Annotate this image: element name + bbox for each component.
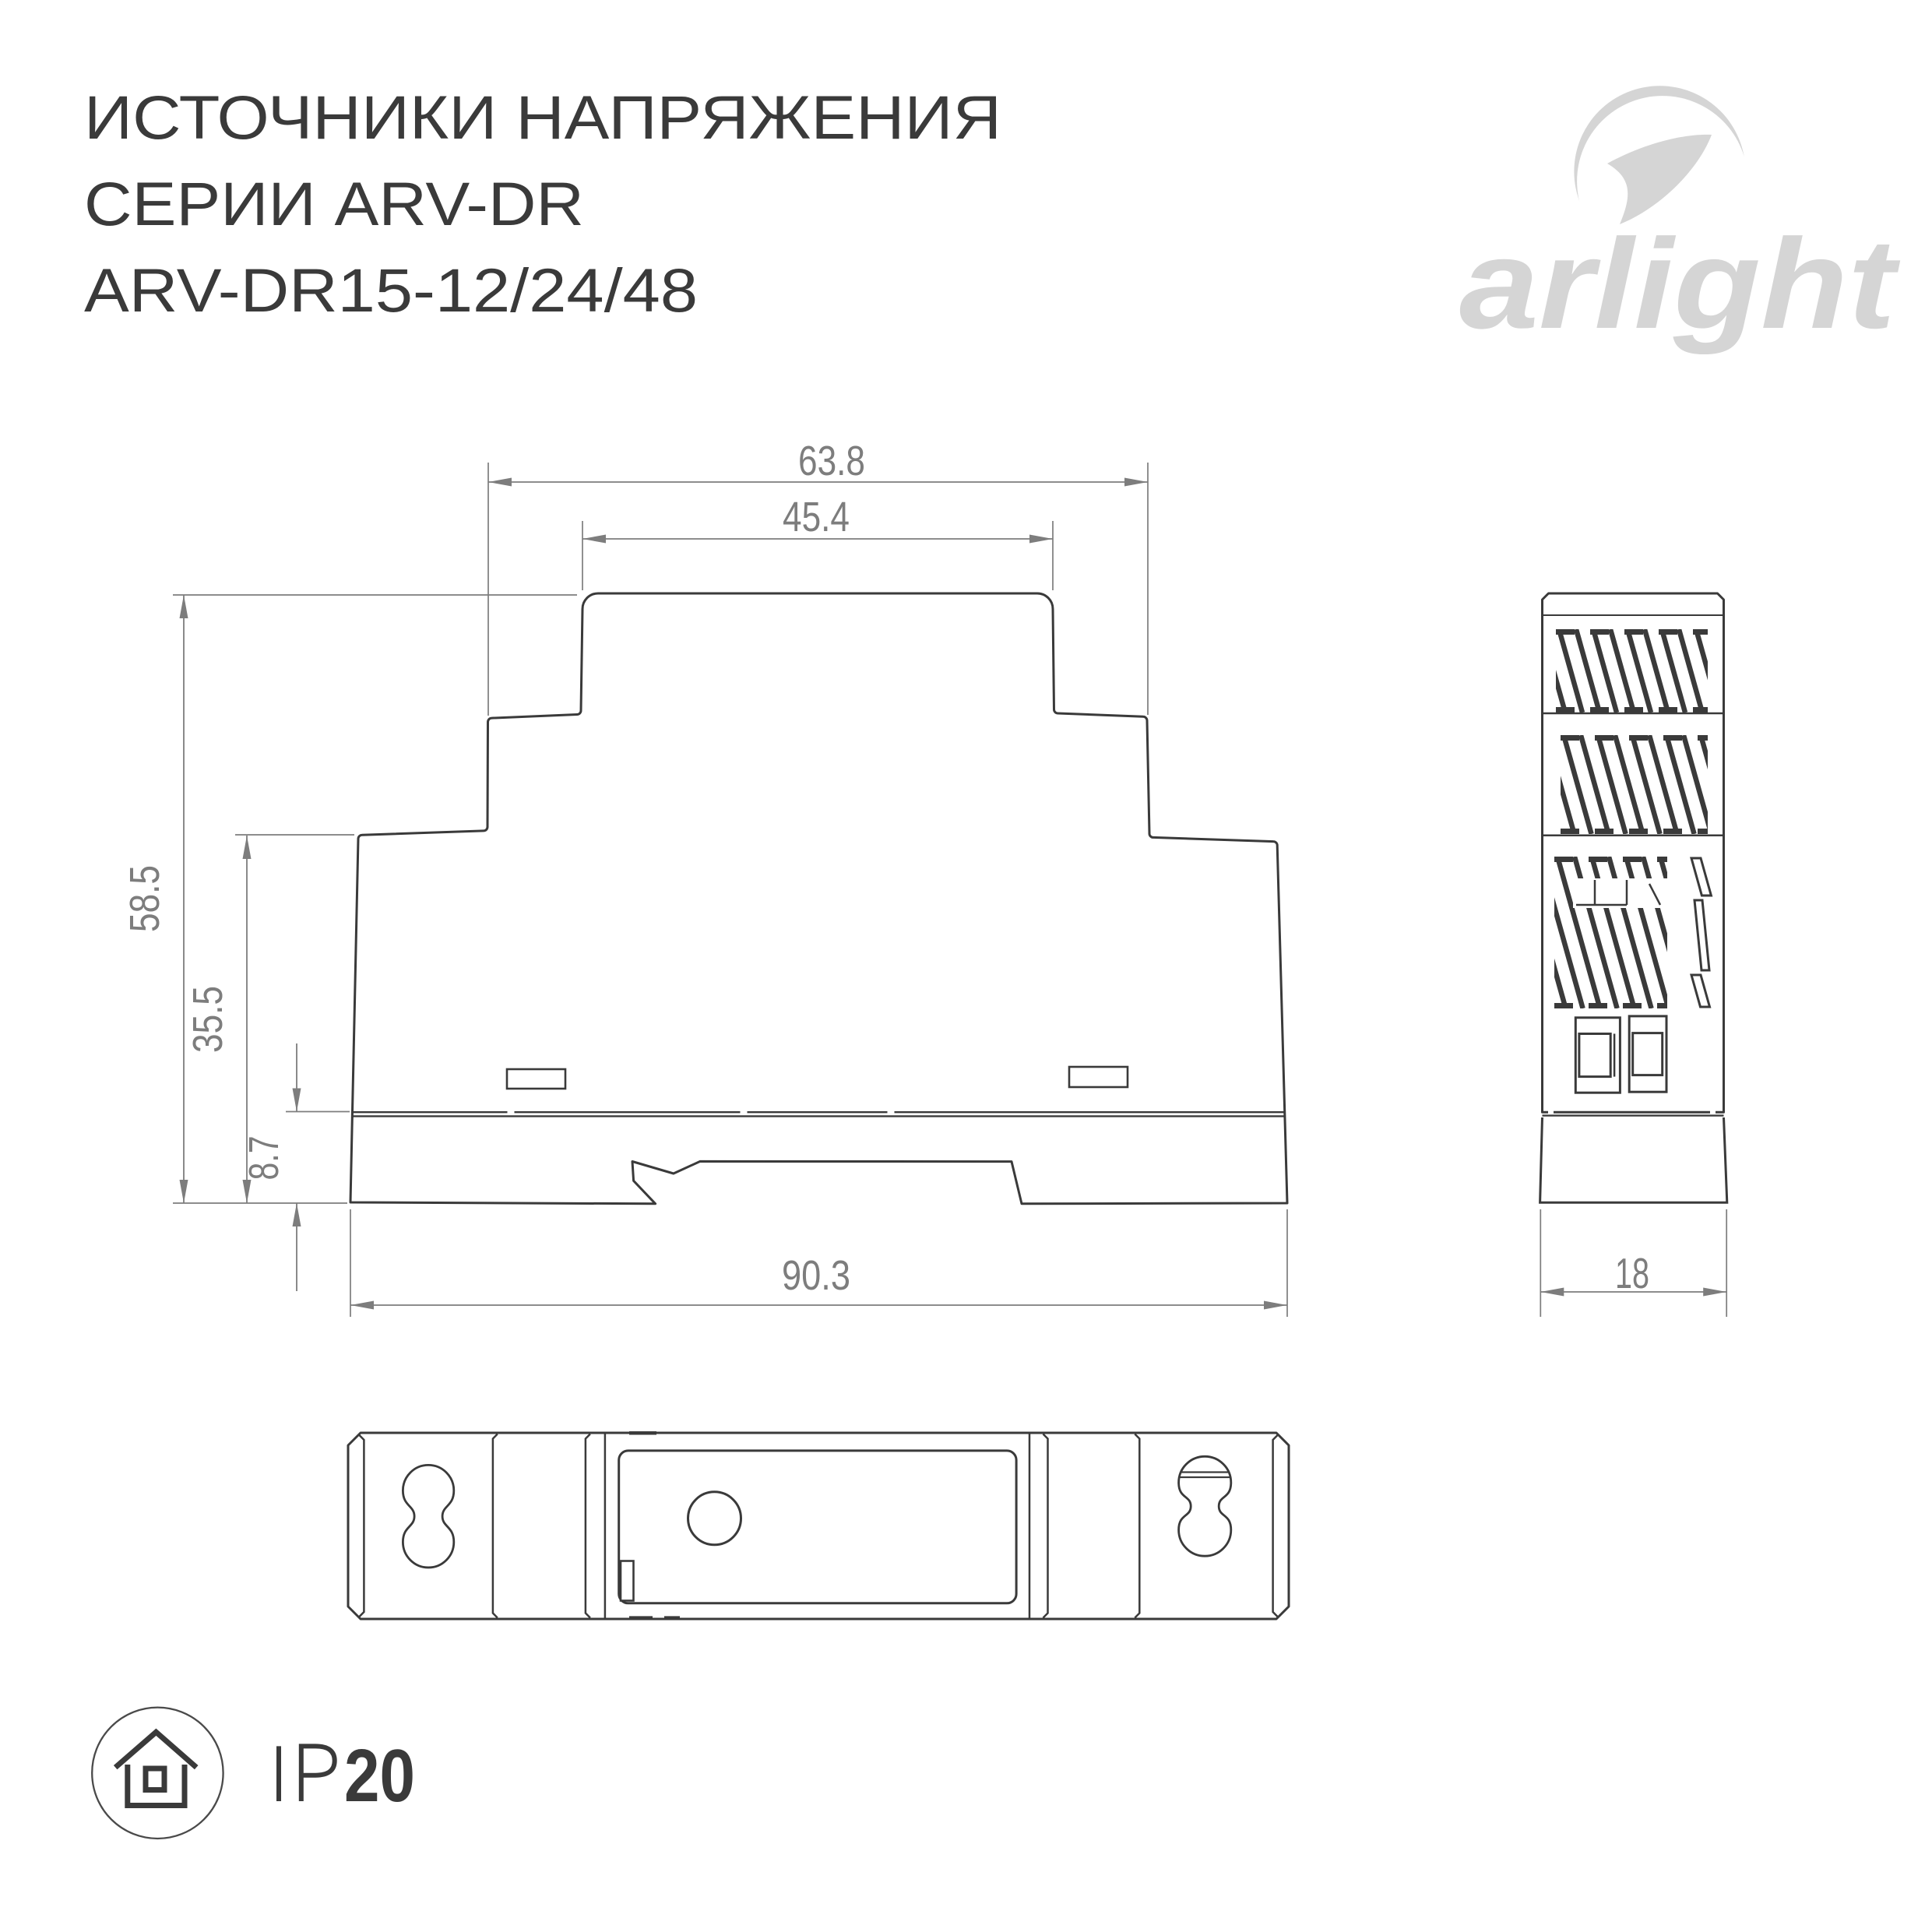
- svg-text:45.4: 45.4: [783, 494, 850, 540]
- svg-text:arlight: arlight: [1459, 213, 1901, 355]
- svg-text:63.8: 63.8: [798, 438, 865, 484]
- svg-text:58.5: 58.5: [122, 865, 168, 932]
- svg-text:8.7: 8.7: [241, 1136, 287, 1181]
- svg-text:90.3: 90.3: [782, 1253, 850, 1299]
- svg-text:СЕРИИ ARV-DR: СЕРИИ ARV-DR: [84, 170, 584, 238]
- svg-text:35.5: 35.5: [185, 986, 231, 1053]
- svg-text:18: 18: [1615, 1249, 1649, 1297]
- svg-text:ARV-DR15-12/24/48: ARV-DR15-12/24/48: [84, 256, 698, 325]
- svg-text:20: 20: [344, 1734, 415, 1818]
- svg-text:ИСТОЧНИКИ НАПРЯЖЕНИЯ: ИСТОЧНИКИ НАПРЯЖЕНИЯ: [84, 83, 1001, 152]
